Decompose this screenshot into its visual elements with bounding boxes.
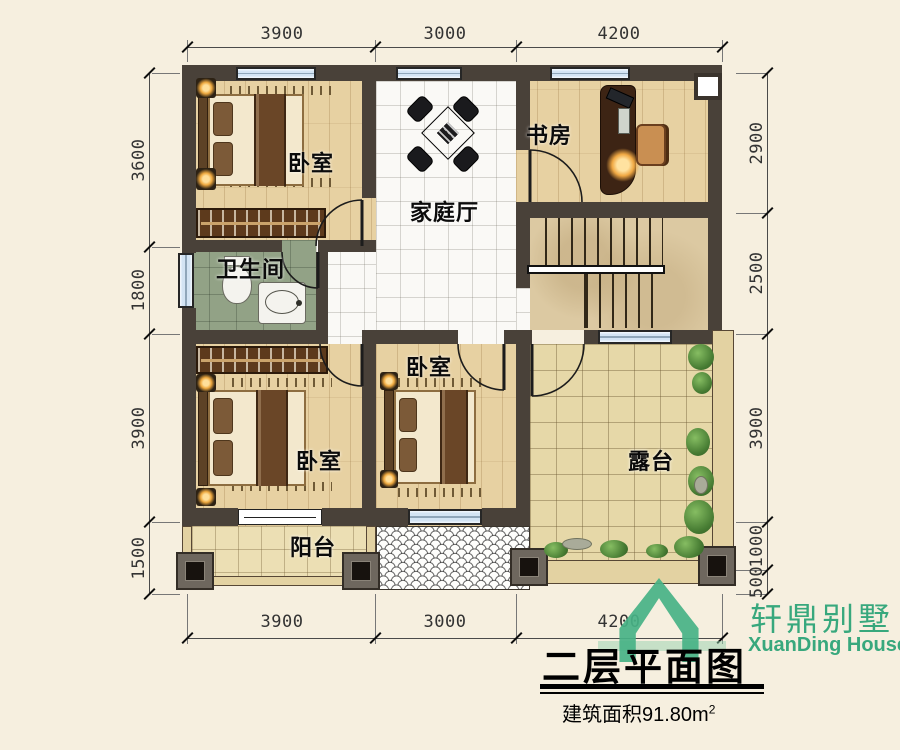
dim-top-1: 3900 (252, 24, 312, 44)
dim-ext (736, 213, 766, 214)
dim-bottom-2: 3000 (415, 612, 475, 632)
dim-ext (736, 334, 766, 335)
dim-ext (152, 73, 180, 74)
dim-ext (152, 247, 180, 248)
area-text: 建筑面积91.80m2 (562, 698, 715, 727)
dim-ext (152, 594, 180, 595)
dim-right-3: 3900 (747, 400, 765, 456)
dim-ext (152, 334, 180, 335)
area-superscript: 2 (709, 702, 716, 716)
dim-left-2: 1800 (129, 262, 147, 318)
dim-top-2: 3000 (415, 24, 475, 44)
door-arc-bathroom (282, 252, 318, 288)
dim-ext (152, 522, 180, 523)
area-value: 建筑面积91.80m (562, 704, 709, 726)
room-label-family-hall: 家庭厅 (410, 195, 479, 227)
door-arc-bedroom3 (458, 344, 504, 390)
dim-right-1: 2900 (747, 115, 765, 171)
brand-name-en: XuanDing House (748, 634, 900, 657)
door-arc-study (530, 150, 582, 202)
dim-ext (736, 73, 766, 74)
door-arc-terrace (532, 344, 584, 396)
drawing-title: 二层平面图 (542, 636, 747, 691)
dim-left-4: 1500 (129, 530, 147, 586)
room-label-bathroom: 卫生间 (216, 252, 285, 284)
room-label-bedroom3: 卧室 (406, 350, 452, 382)
title-rule-thick (540, 684, 764, 689)
floor-plan-page: 卧室 家庭厅 书房 卫生间 卧室 卧室 露台 阳台 3900 3000 4200… (0, 0, 900, 750)
room-label-terrace: 露台 (628, 444, 674, 476)
door-arc-bedroom2 (320, 344, 362, 386)
dim-right-2: 2500 (747, 245, 765, 301)
room-label-bedroom2: 卧室 (296, 444, 342, 476)
door-arc-bedroom1 (316, 200, 362, 246)
room-label-study: 书房 (526, 118, 572, 150)
title-rule-thin (540, 692, 764, 694)
dim-left-3: 3900 (129, 400, 147, 456)
room-label-bedroom1: 卧室 (288, 146, 334, 178)
dim-top-3: 4200 (589, 24, 649, 44)
dim-left-1: 3600 (129, 132, 147, 188)
dim-line-top (187, 47, 722, 48)
room-label-balcony: 阳台 (290, 530, 336, 562)
dim-bottom-1: 3900 (252, 612, 312, 632)
